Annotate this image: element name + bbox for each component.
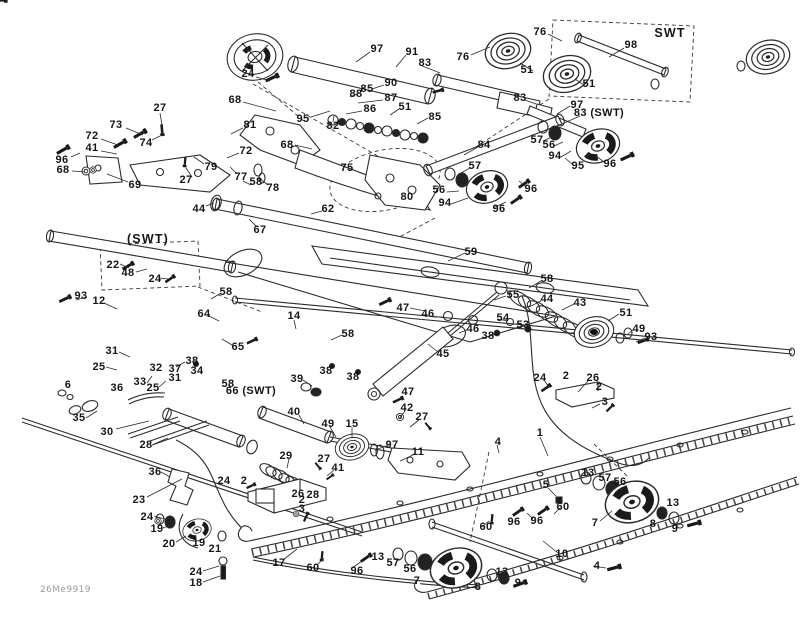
part-label-24: 24 (533, 372, 546, 384)
part-label-57: 57 (386, 557, 399, 569)
part-label-13: 13 (495, 566, 508, 578)
part-label-59: 59 (464, 246, 477, 258)
part-label-27: 27 (317, 453, 330, 465)
part-label-7: 7 (592, 517, 599, 529)
part-label-82: 82 (326, 120, 339, 132)
part-label-9: 9 (515, 577, 522, 589)
part-label-3: 3 (299, 503, 306, 515)
part-label-38: 38 (346, 371, 359, 383)
part-label-72: 72 (239, 145, 252, 157)
part-label-31: 31 (105, 345, 118, 357)
part-label-94: 94 (438, 197, 451, 209)
part-label-58: 58 (341, 328, 354, 340)
part-label-86: 86 (363, 103, 376, 115)
part-label-68: 68 (280, 139, 293, 151)
part-label-4: 4 (495, 436, 502, 448)
part-label-9: 9 (672, 523, 679, 535)
part-label-45: 45 (436, 348, 449, 360)
part-label-85: 85 (428, 111, 441, 123)
part-label-24: 24 (241, 68, 254, 80)
part-label-13: 13 (666, 497, 679, 509)
part-label-46: 46 (421, 308, 434, 320)
part-label-73: 73 (109, 119, 122, 131)
part-labels-layer: 2724687374724196686927798172775878446762… (0, 0, 800, 619)
part-label-60: 60 (306, 562, 319, 574)
part-label-44: 44 (540, 293, 553, 305)
part-label-21: 21 (208, 543, 221, 555)
part-label-38: 38 (319, 365, 332, 377)
part-label-51: 51 (582, 78, 595, 90)
part-label-81: 81 (243, 119, 256, 131)
part-label-76: 76 (456, 51, 469, 63)
part-label-98: 98 (624, 39, 637, 51)
part-label-79: 79 (204, 161, 217, 173)
part-label-74: 74 (139, 137, 152, 149)
part-label-15: 15 (345, 418, 358, 430)
part-label-58: 58 (219, 286, 232, 298)
part-label-22: 22 (106, 259, 119, 271)
part-label-5: 5 (543, 479, 550, 491)
part-label-18: 18 (189, 577, 202, 589)
part-label-56: 56 (613, 476, 626, 488)
part-label-96: 96 (603, 158, 616, 170)
part-label-90: 90 (384, 77, 397, 89)
part-label-39: 39 (290, 373, 303, 385)
part-label-57: 57 (598, 472, 611, 484)
part-label-97: 97 (385, 439, 398, 451)
part-label-27: 27 (153, 102, 166, 114)
part-label-29: 29 (279, 450, 292, 462)
part-label-60: 60 (556, 501, 569, 513)
part-label-11: 11 (412, 446, 424, 458)
part-label-10: 10 (555, 548, 568, 560)
part-label-24: 24 (140, 511, 153, 523)
part-label-2: 2 (241, 475, 248, 487)
part-label-36: 36 (148, 466, 161, 478)
part-label-19: 19 (150, 523, 163, 535)
part-label-72: 72 (85, 130, 98, 142)
part-label-68: 68 (56, 164, 69, 176)
part-label-6: 6 (65, 379, 72, 391)
part-label-3: 3 (602, 396, 609, 408)
part-label-56: 56 (432, 184, 445, 196)
part-label-80: 80 (400, 191, 413, 203)
parts-diagram-canvas: 2724687374724196686927798172775878446762… (0, 0, 800, 619)
part-label-36: 36 (110, 382, 123, 394)
part-label-24: 24 (217, 475, 230, 487)
part-label-32: 32 (149, 362, 162, 374)
part-label-76: 76 (533, 26, 546, 38)
part-label-24: 24 (148, 273, 161, 285)
part-label-33: 33 (133, 376, 146, 388)
part-label-96: 96 (350, 565, 363, 577)
part-label-55: 55 (506, 289, 519, 301)
part-label-94: 94 (548, 150, 561, 162)
part-label-88: 88 (349, 88, 362, 100)
part-label-51: 51 (520, 64, 533, 76)
part-label-83-swt-: 83 (SWT) (574, 107, 624, 119)
part-label-75: 75 (340, 162, 353, 174)
part-label-47: 47 (401, 386, 414, 398)
part-label-46: 46 (466, 323, 479, 335)
part-label-28: 28 (139, 439, 152, 451)
part-label-51: 51 (398, 101, 411, 113)
part-label-78: 78 (266, 182, 279, 194)
part-label-93: 93 (644, 331, 657, 343)
part-label-54: 54 (496, 312, 509, 324)
part-label-25: 25 (92, 361, 105, 373)
part-label-83: 83 (513, 92, 526, 104)
part-label-96: 96 (530, 515, 543, 527)
part-label-67: 67 (253, 224, 266, 236)
part-label-13: 13 (371, 551, 384, 563)
part-label-7: 7 (414, 575, 421, 587)
part-label-14: 14 (287, 310, 300, 322)
part-label-60: 60 (479, 521, 492, 533)
part-label-41: 41 (331, 462, 344, 474)
part-label-58: 58 (540, 273, 553, 285)
part-label-27: 27 (179, 174, 192, 186)
part-label-40: 40 (287, 406, 300, 418)
part-label-68: 68 (228, 94, 241, 106)
part-label-91: 91 (405, 46, 418, 58)
part-label-20: 20 (162, 538, 175, 550)
part-label-57: 57 (468, 160, 481, 172)
part-label-65: 65 (231, 341, 244, 353)
part-label-swt: SWT (654, 26, 685, 40)
part-label-8: 8 (475, 581, 482, 593)
part-label-31: 31 (168, 372, 181, 384)
part-label-13: 13 (581, 467, 594, 479)
part-label-23: 23 (132, 494, 145, 506)
part-label-48: 48 (121, 267, 134, 279)
part-label-12: 12 (92, 295, 105, 307)
part-label-38: 38 (481, 330, 494, 342)
part-label-30: 30 (100, 426, 113, 438)
part-label-49: 49 (321, 418, 334, 430)
part-label-64: 64 (197, 308, 210, 320)
part-label-96: 96 (492, 203, 505, 215)
part-label-62: 62 (321, 203, 334, 215)
part-label-66-swt-: 66 (SWT) (226, 385, 276, 397)
part-label-47: 47 (396, 302, 409, 314)
part-label-58: 58 (249, 176, 262, 188)
part-label-69: 69 (128, 179, 141, 191)
part-label-28: 28 (306, 489, 319, 501)
part-label-2: 2 (563, 370, 570, 382)
part-label-35: 35 (72, 412, 85, 424)
part-label-95: 95 (571, 160, 584, 172)
part-label-34: 34 (190, 365, 203, 377)
part-label--swt-: (SWT) (127, 232, 169, 246)
part-label-27: 27 (415, 411, 428, 423)
part-label-17: 17 (272, 557, 285, 569)
part-label-84: 84 (477, 139, 490, 151)
part-label-44: 44 (192, 203, 205, 215)
part-label-1: 1 (537, 427, 544, 439)
part-label-2: 2 (596, 381, 603, 393)
part-label-25: 25 (146, 382, 159, 394)
part-label-93: 93 (74, 290, 87, 302)
part-label-19: 19 (192, 537, 205, 549)
part-label-56: 56 (403, 563, 416, 575)
part-label-87: 87 (384, 92, 397, 104)
part-label-96: 96 (507, 516, 520, 528)
part-label-4: 4 (594, 560, 601, 572)
part-label-41: 41 (85, 142, 98, 154)
part-label-8: 8 (650, 518, 657, 530)
part-label-97: 97 (370, 43, 383, 55)
part-label-83: 83 (418, 57, 431, 69)
part-label-53: 53 (516, 319, 529, 331)
part-label-95: 95 (296, 113, 309, 125)
part-label-43: 43 (573, 297, 586, 309)
part-label-51: 51 (619, 307, 632, 319)
part-label-42: 42 (400, 402, 413, 414)
part-label-96: 96 (524, 183, 537, 195)
part-label-77: 77 (234, 171, 247, 183)
